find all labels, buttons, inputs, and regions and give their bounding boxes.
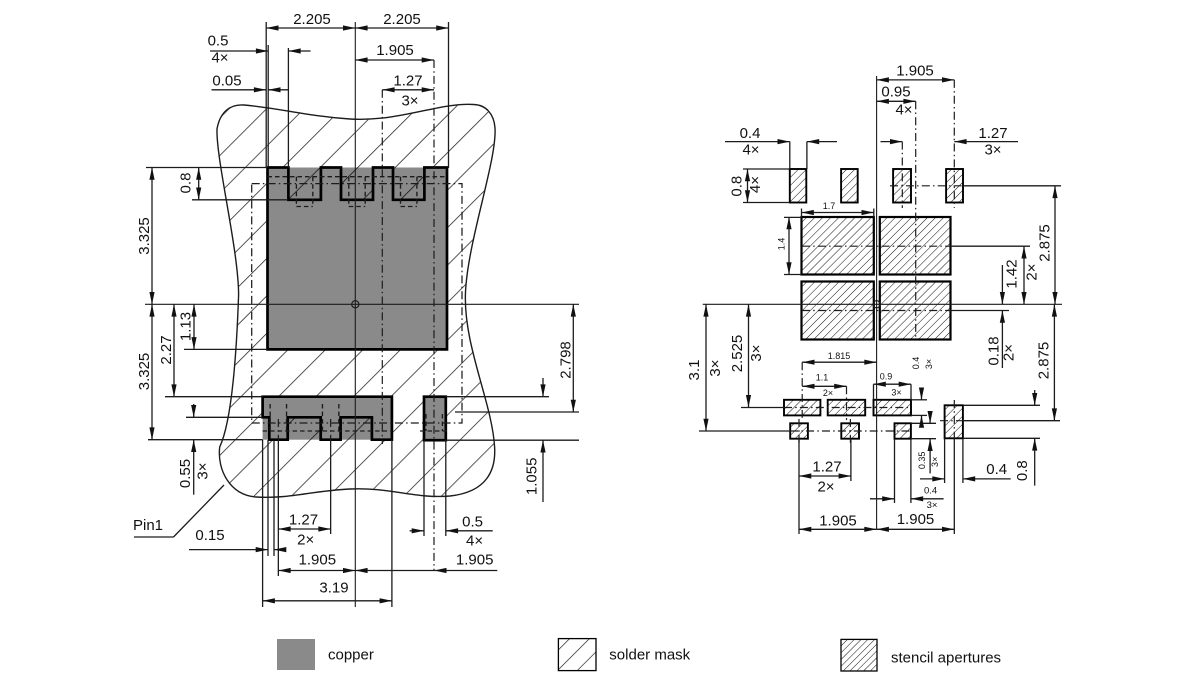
svg-text:1.905: 1.905 [897,511,935,528]
svg-text:4×: 4× [747,176,764,193]
svg-text:0.8: 0.8 [178,173,195,194]
svg-text:4×: 4× [211,50,228,67]
svg-text:0.4: 0.4 [924,486,937,497]
svg-text:1.7: 1.7 [823,201,836,211]
svg-text:1.815: 1.815 [828,351,851,361]
svg-text:3×: 3× [707,359,724,376]
svg-text:4×: 4× [466,533,483,550]
svg-text:3.325: 3.325 [136,353,153,391]
svg-text:1.905: 1.905 [819,513,857,530]
svg-text:2.798: 2.798 [558,341,575,379]
svg-text:2.875: 2.875 [1037,224,1054,262]
svg-text:0.8: 0.8 [1014,460,1031,481]
svg-text:1.27: 1.27 [978,125,1007,142]
svg-text:2.525: 2.525 [729,335,746,373]
svg-text:2.205: 2.205 [293,11,331,28]
svg-text:0.9: 0.9 [880,372,893,382]
svg-text:0.95: 0.95 [881,84,910,101]
svg-text:3×: 3× [748,344,765,361]
svg-text:1.4: 1.4 [777,238,787,251]
svg-text:3×: 3× [195,462,212,479]
svg-text:2.27: 2.27 [158,335,175,364]
svg-text:2.205: 2.205 [383,11,421,28]
svg-text:3.1: 3.1 [686,360,703,381]
svg-text:1.905: 1.905 [896,63,934,80]
svg-text:0.35: 0.35 [917,452,927,470]
svg-text:copper: copper [328,647,374,664]
svg-text:2×: 2× [823,388,833,398]
svg-text:1.27: 1.27 [289,512,318,529]
svg-text:0.15: 0.15 [195,527,224,544]
svg-text:0.8: 0.8 [729,176,746,197]
svg-text:1.905: 1.905 [376,42,414,59]
svg-text:1.055: 1.055 [523,458,540,496]
svg-text:3.325: 3.325 [136,217,153,255]
svg-text:solder mask: solder mask [609,647,690,664]
svg-text:0.5: 0.5 [462,513,483,530]
svg-text:2.875: 2.875 [1036,342,1053,380]
svg-text:3×: 3× [924,359,934,369]
svg-text:1.905: 1.905 [456,551,494,568]
svg-text:3×: 3× [930,457,940,467]
svg-text:1.27: 1.27 [812,459,841,476]
svg-text:3×: 3× [891,388,901,398]
svg-text:0.4: 0.4 [986,461,1007,478]
svg-text:1.13: 1.13 [177,312,194,341]
svg-text:3×: 3× [401,93,418,110]
svg-text:1.42: 1.42 [1004,259,1021,288]
svg-text:2×: 2× [297,532,314,549]
svg-text:0.55: 0.55 [177,459,194,488]
svg-text:3×: 3× [927,500,938,511]
svg-text:3×: 3× [984,142,1001,159]
svg-text:4×: 4× [742,142,759,159]
svg-text:1.27: 1.27 [393,73,422,90]
svg-text:0.4: 0.4 [911,357,921,370]
svg-text:0.05: 0.05 [212,73,241,90]
svg-text:1.905: 1.905 [299,552,337,569]
svg-text:1.1: 1.1 [816,373,829,383]
svg-text:3.19: 3.19 [319,580,348,597]
svg-text:0.4: 0.4 [740,125,761,142]
svg-text:2×: 2× [817,479,834,496]
svg-text:4×: 4× [895,102,912,119]
svg-text:2×: 2× [1024,263,1041,280]
svg-text:stencil apertures: stencil apertures [891,650,1001,667]
svg-text:0.5: 0.5 [208,33,229,50]
svg-text:Pin1: Pin1 [133,517,163,534]
